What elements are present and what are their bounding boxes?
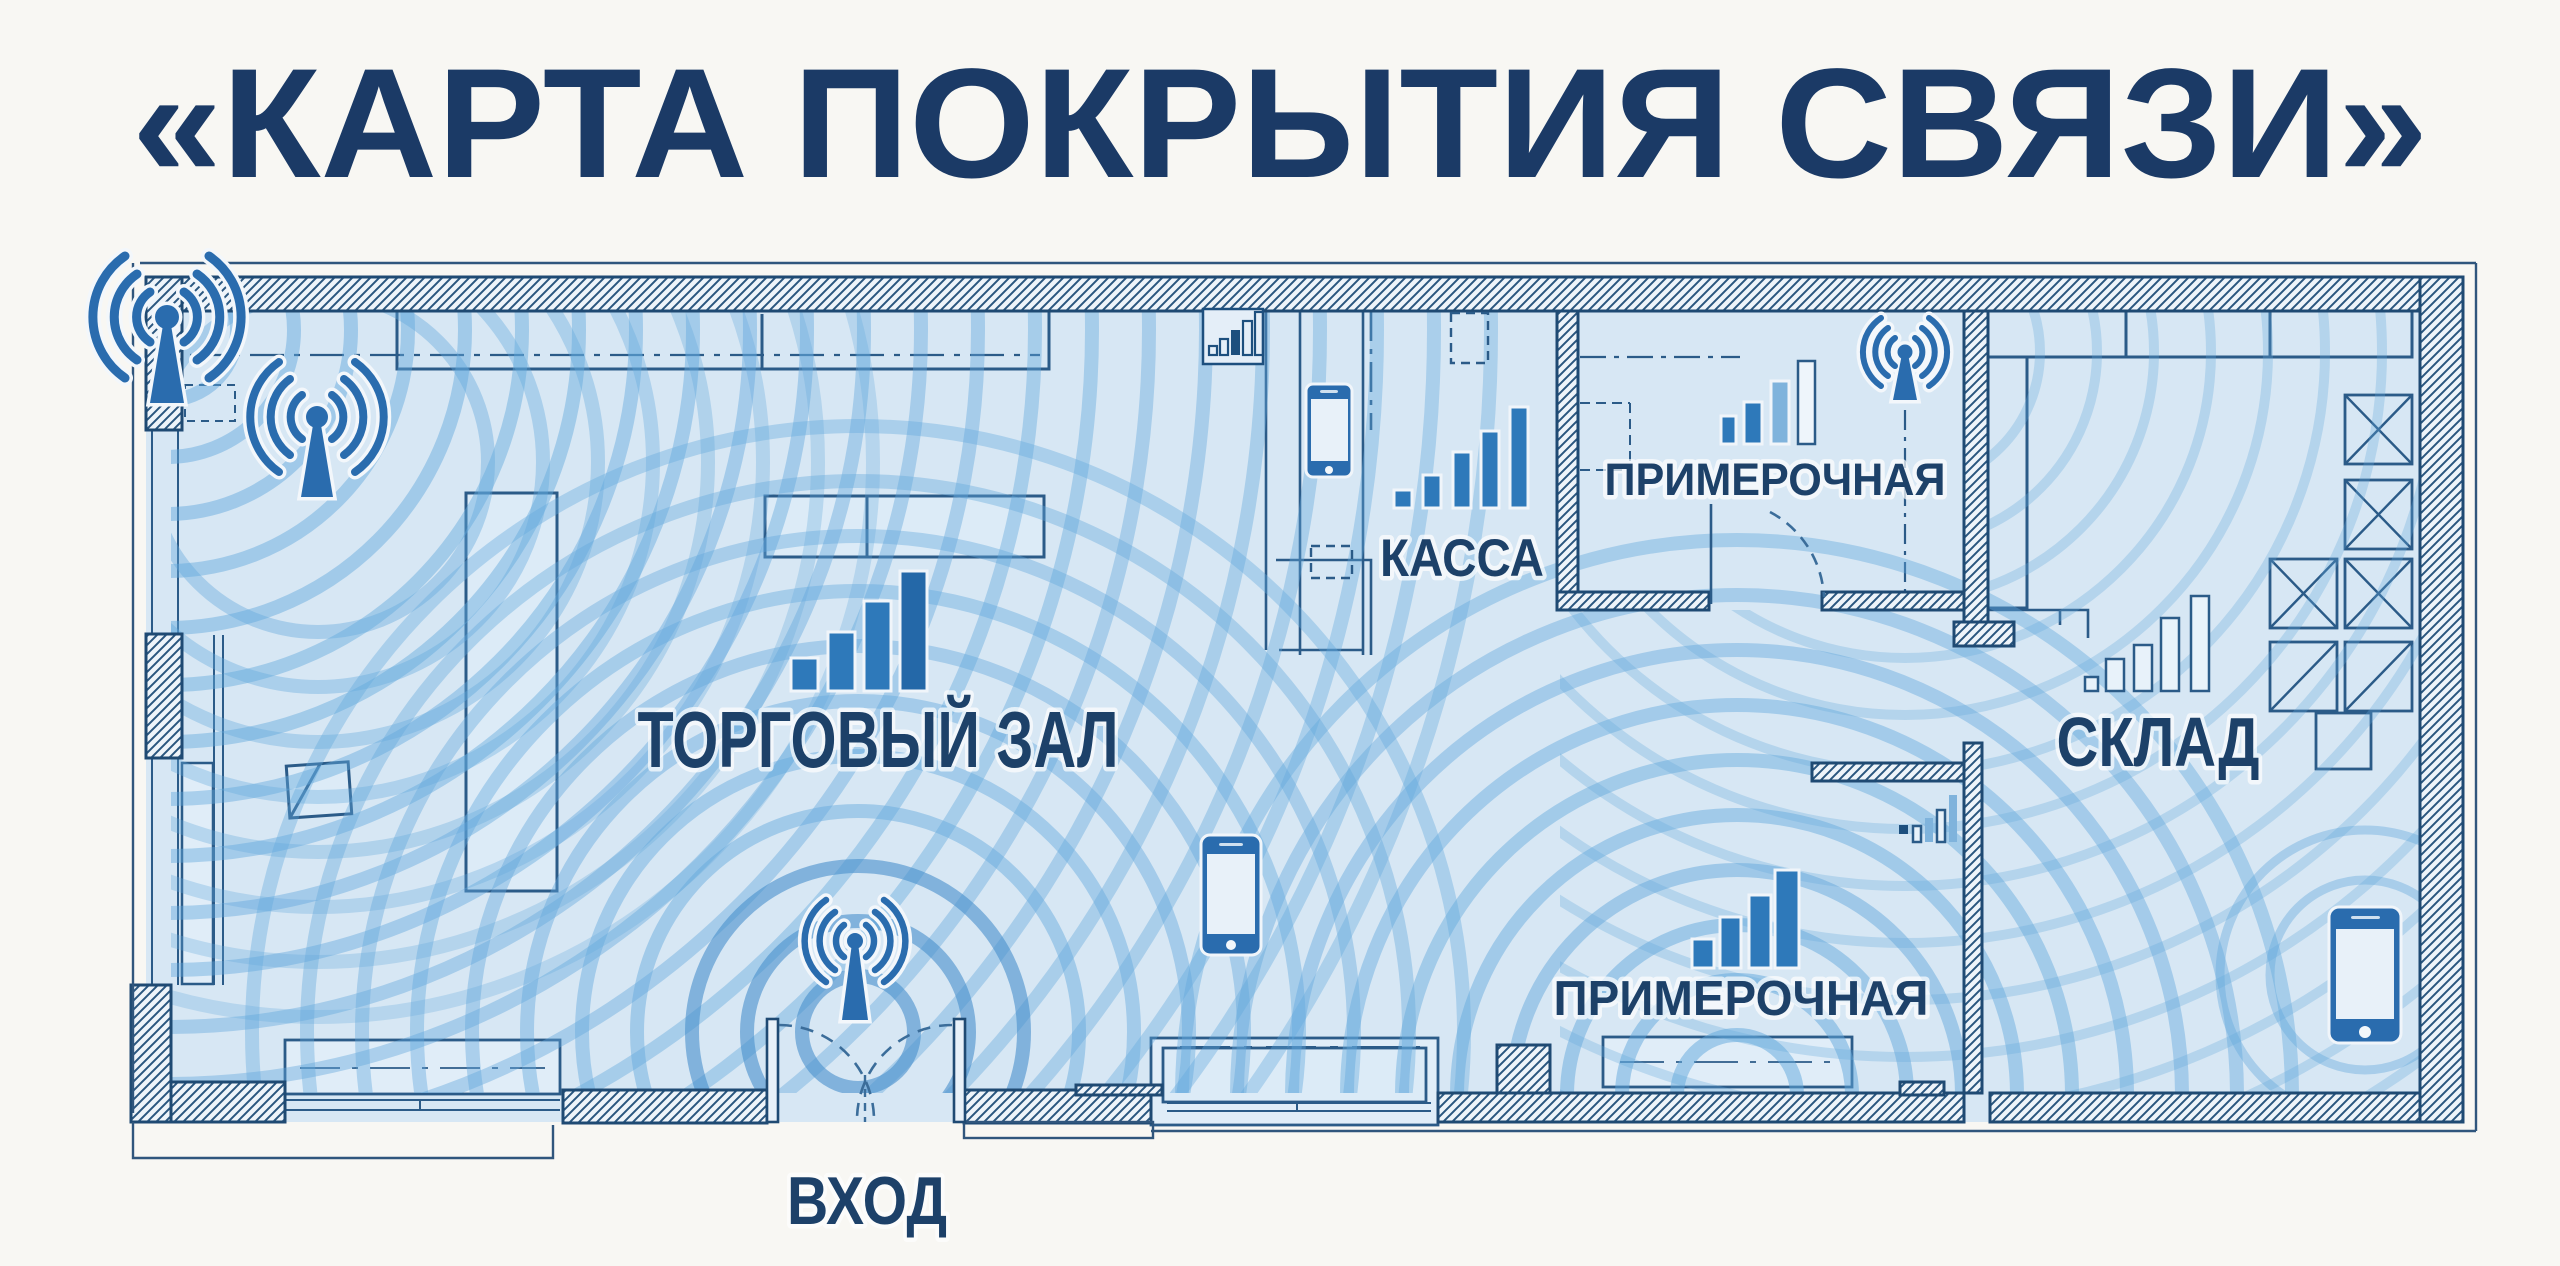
svg-text:«КАРТА ПОКРЫТИЯ СВЯЗИ»: «КАРТА ПОКРЫТИЯ СВЯЗИ» <box>132 37 2428 211</box>
svg-text:СКЛАД: СКЛАД <box>2057 703 2260 781</box>
svg-text:ПРИМЕРОЧНАЯ: ПРИМЕРОЧНАЯ <box>1554 972 1929 1026</box>
svg-text:ВХОД: ВХОД <box>787 1163 947 1239</box>
svg-text:ПРИМЕРОЧНАЯ: ПРИМЕРОЧНАЯ <box>1605 454 1946 505</box>
svg-text:ТОРГОВЫЙ ЗАЛ: ТОРГОВЫЙ ЗАЛ <box>638 694 1119 784</box>
svg-text:КАССА: КАССА <box>1380 529 1544 588</box>
